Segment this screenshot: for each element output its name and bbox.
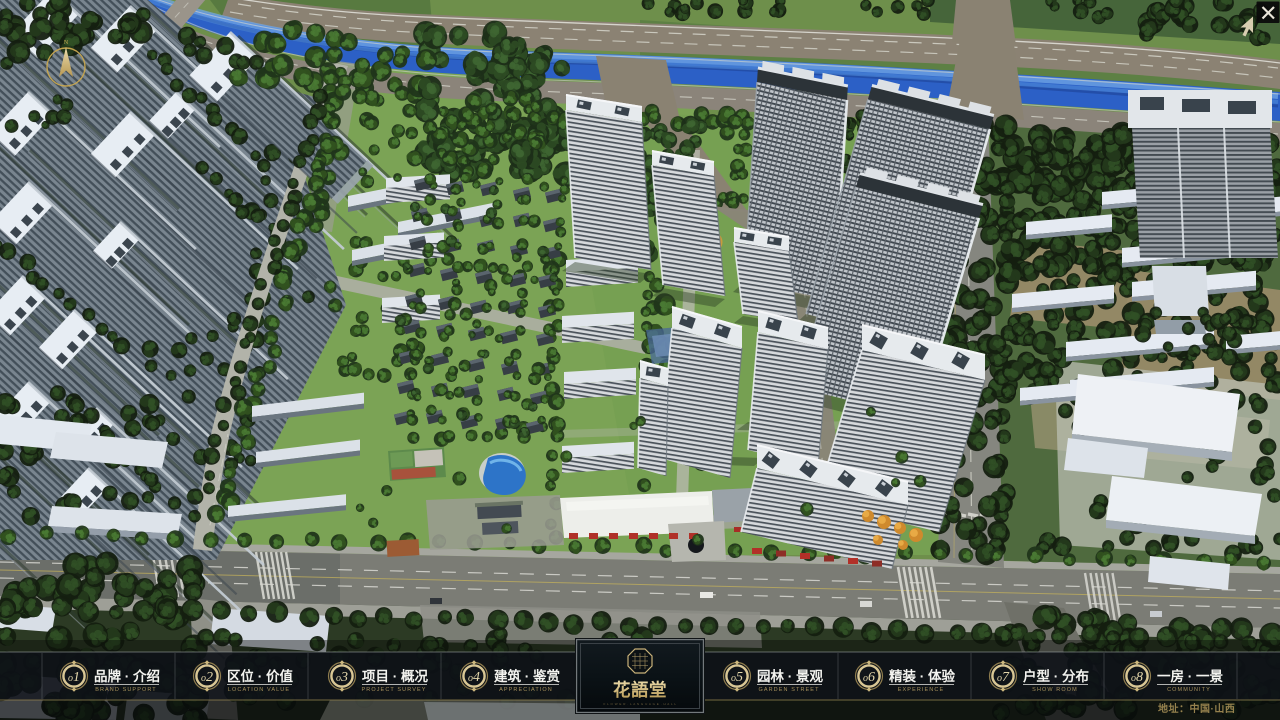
svg-text:LOCATION VALUE: LOCATION VALUE [228, 687, 290, 693]
svg-text:园林 · 景观: 园林 · 景观 [757, 668, 823, 684]
svg-text:BRAND SUPPORT: BRAND SUPPORT [95, 687, 157, 693]
svg-text:花語堂: 花語堂 [613, 680, 667, 700]
svg-text:o2: o2 [201, 670, 213, 685]
svg-text:o6: o6 [863, 670, 875, 685]
svg-text:o5: o5 [731, 670, 743, 685]
svg-text:EXPERIENCE: EXPERIENCE [898, 687, 944, 693]
svg-text:PROJECT SURVEY: PROJECT SURVEY [361, 687, 426, 693]
svg-text:APPRECIATION: APPRECIATION [499, 687, 553, 693]
svg-text:品牌 · 介绍: 品牌 · 介绍 [94, 668, 160, 684]
svg-text:GARDEN STREET: GARDEN STREET [758, 687, 819, 693]
svg-text:o3: o3 [336, 670, 348, 685]
svg-text:区位 · 价值: 区位 · 价值 [227, 668, 293, 684]
svg-text:地址：中国·山西: 地址：中国·山西 [1158, 702, 1235, 715]
svg-text:F L O W E R · L A N G U A G E: F L O W E R · L A N G U A G E · H A L L [603, 702, 676, 706]
svg-text:一房 · 一景: 一房 · 一景 [1157, 668, 1223, 684]
svg-text:项目 · 概况: 项目 · 概况 [362, 668, 428, 684]
svg-text:o7: o7 [997, 670, 1010, 685]
svg-text:o1: o1 [68, 670, 80, 685]
svg-text:o8: o8 [1131, 670, 1143, 685]
svg-text:COMMUNITY: COMMUNITY [1167, 687, 1211, 693]
svg-text:精装 · 体验: 精装 · 体验 [889, 668, 955, 684]
svg-text:户型 · 分布: 户型 · 分布 [1023, 668, 1089, 684]
svg-text:建筑 · 鉴赏: 建筑 · 鉴赏 [493, 668, 560, 684]
svg-text:SHOW ROOM: SHOW ROOM [1032, 687, 1078, 693]
svg-text:N: N [64, 40, 69, 46]
svg-text:o4: o4 [468, 670, 480, 685]
